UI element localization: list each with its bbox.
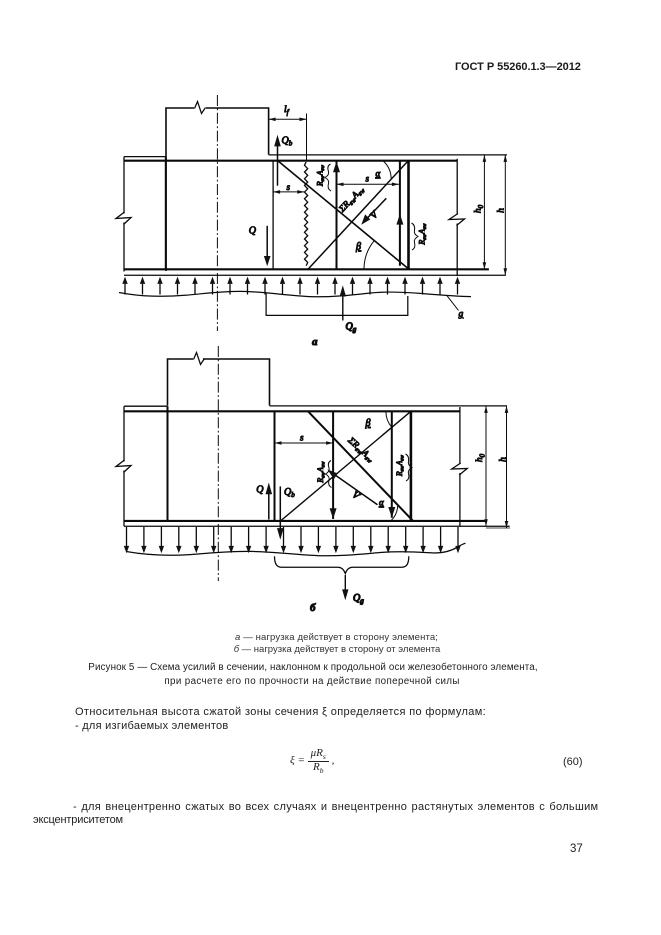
svg-text:h: h — [499, 457, 509, 462]
svg-text:β: β — [365, 418, 371, 429]
svg-text:β: β — [355, 242, 361, 253]
svg-text:Qb: Qb — [282, 136, 293, 148]
svg-text:h0: h0 — [474, 204, 486, 213]
svg-text:g: g — [459, 310, 464, 320]
svg-text:ΣRswAsw: ΣRswAsw — [344, 434, 377, 465]
svg-text:RswAsw: RswAsw — [316, 461, 327, 484]
svg-text:α: α — [376, 169, 381, 179]
svg-text:h: h — [497, 208, 507, 213]
svg-text:s: s — [300, 433, 304, 443]
svg-text:s: s — [366, 174, 370, 184]
svg-text:RswAsw: RswAsw — [316, 165, 327, 188]
svg-text:h0: h0 — [475, 453, 487, 462]
svg-text:Qg: Qg — [353, 593, 364, 605]
svg-text:RswAsw: RswAsw — [395, 455, 406, 478]
svg-text:Qb: Qb — [284, 487, 295, 499]
svg-text:RswAsw: RswAsw — [418, 223, 429, 246]
svg-text:а: а — [312, 336, 318, 348]
svg-text:V: V — [350, 489, 363, 503]
svg-text:lf: lf — [284, 105, 290, 117]
svg-text:Q: Q — [249, 226, 257, 237]
svg-text:α: α — [379, 498, 384, 508]
svg-text:Q: Q — [256, 485, 264, 496]
svg-text:Qg: Qg — [346, 322, 357, 334]
svg-text:б: б — [310, 602, 316, 614]
svg-text:s: s — [287, 182, 291, 192]
